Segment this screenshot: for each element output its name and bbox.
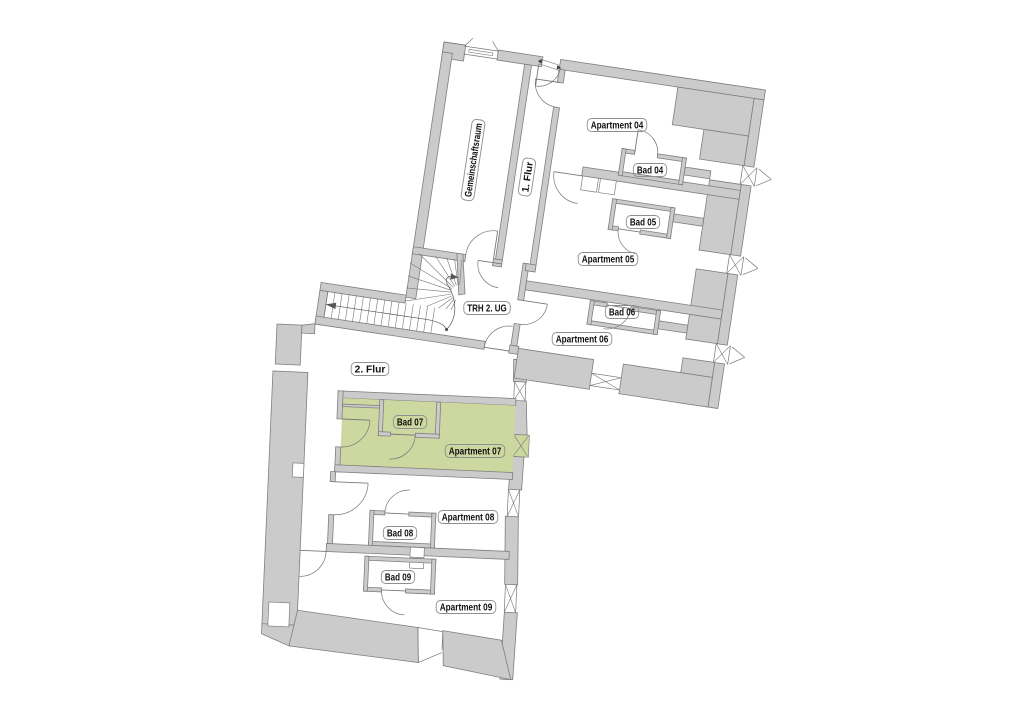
svg-text:Bad 05: Bad 05 (630, 218, 657, 229)
svg-text:Bad 09: Bad 09 (385, 573, 412, 584)
svg-text:Apartment 07: Apartment 07 (449, 447, 502, 458)
svg-text:Bad 07: Bad 07 (397, 418, 424, 429)
svg-text:TRH 2. UG: TRH 2. UG (467, 304, 507, 315)
svg-text:Apartment 05: Apartment 05 (582, 255, 635, 266)
svg-text:Apartment 08: Apartment 08 (442, 513, 495, 524)
svg-text:Apartment 04: Apartment 04 (591, 121, 644, 132)
svg-text:Bad 06: Bad 06 (609, 308, 636, 319)
svg-text:Bad 08: Bad 08 (387, 529, 414, 540)
svg-text:Bad 04: Bad 04 (637, 166, 664, 177)
svg-text:Apartment 06: Apartment 06 (556, 335, 609, 346)
svg-text:2. Flur: 2. Flur (355, 365, 386, 376)
svg-text:Apartment 09: Apartment 09 (440, 603, 493, 614)
